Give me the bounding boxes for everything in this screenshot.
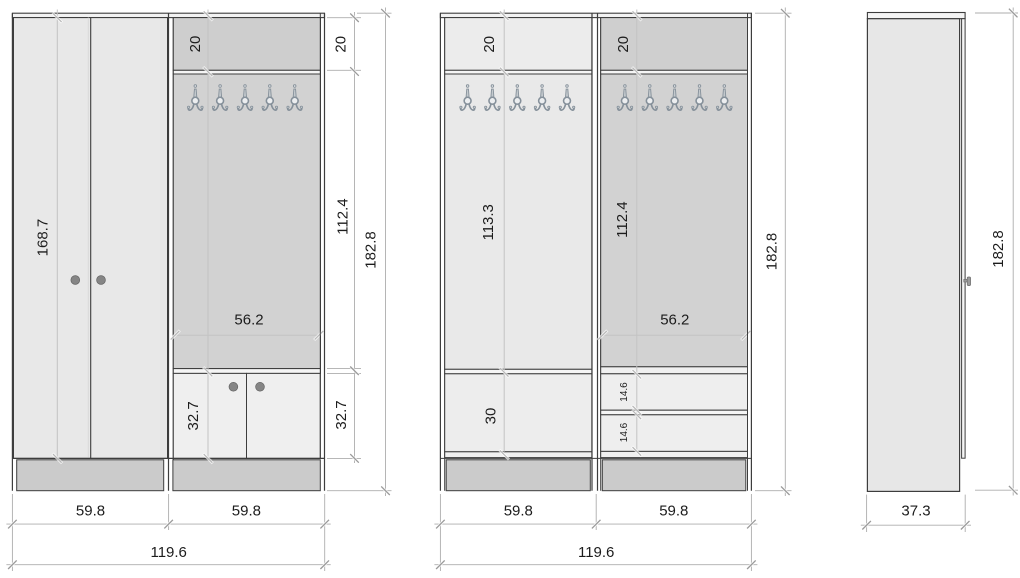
svg-text:113.3: 113.3 xyxy=(480,204,497,240)
svg-text:119.6: 119.6 xyxy=(150,544,186,561)
svg-text:182.8: 182.8 xyxy=(764,233,781,271)
svg-text:59.8: 59.8 xyxy=(504,502,533,519)
svg-text:20: 20 xyxy=(481,36,498,53)
svg-text:20: 20 xyxy=(615,36,632,53)
svg-text:59.8: 59.8 xyxy=(659,502,688,519)
svg-text:56.2: 56.2 xyxy=(234,311,263,328)
svg-text:59.8: 59.8 xyxy=(232,502,261,519)
svg-text:37.3: 37.3 xyxy=(901,502,930,519)
svg-text:112.4: 112.4 xyxy=(335,198,352,234)
svg-text:119.6: 119.6 xyxy=(578,544,614,561)
svg-text:14.6: 14.6 xyxy=(619,382,630,402)
svg-text:20: 20 xyxy=(187,36,204,53)
svg-text:20: 20 xyxy=(332,36,349,53)
svg-text:32.7: 32.7 xyxy=(185,401,202,430)
svg-text:59.8: 59.8 xyxy=(76,502,105,519)
svg-text:182.8: 182.8 xyxy=(990,230,1007,268)
svg-text:56.2: 56.2 xyxy=(660,311,689,328)
svg-text:14.6: 14.6 xyxy=(619,422,630,442)
svg-text:30: 30 xyxy=(483,408,500,425)
svg-text:32.7: 32.7 xyxy=(333,400,350,429)
svg-text:168.7: 168.7 xyxy=(34,219,51,257)
svg-text:112.4: 112.4 xyxy=(614,201,631,237)
svg-text:182.8: 182.8 xyxy=(362,231,379,269)
